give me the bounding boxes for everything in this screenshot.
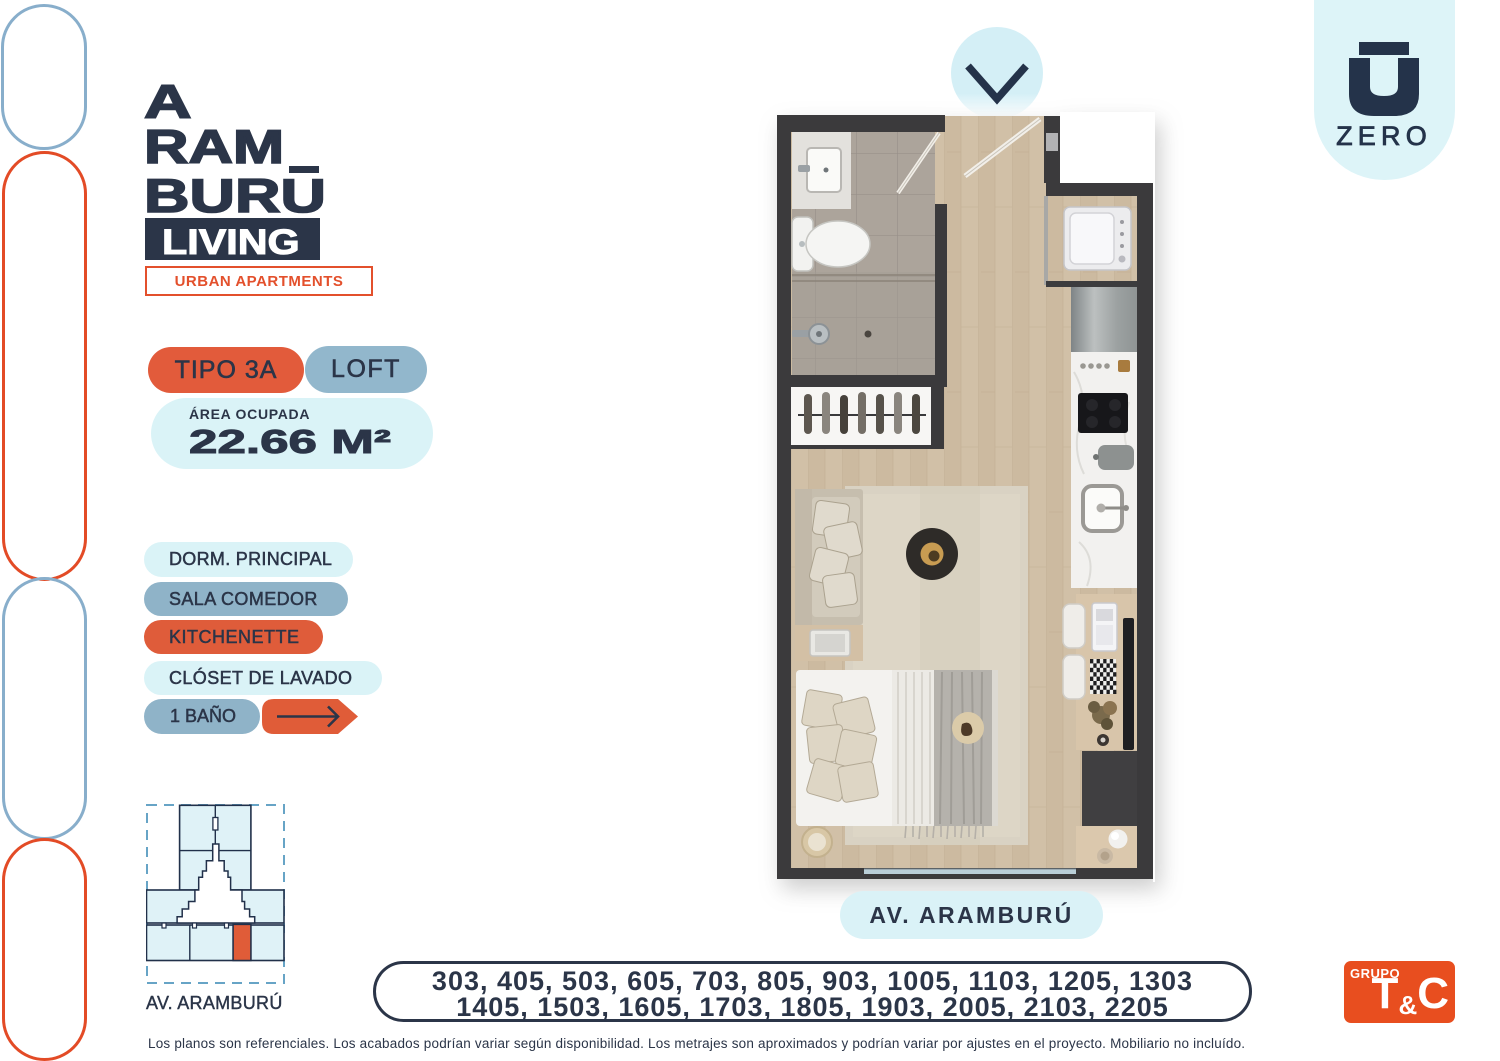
- svg-text:ZERO: ZERO: [1336, 121, 1432, 151]
